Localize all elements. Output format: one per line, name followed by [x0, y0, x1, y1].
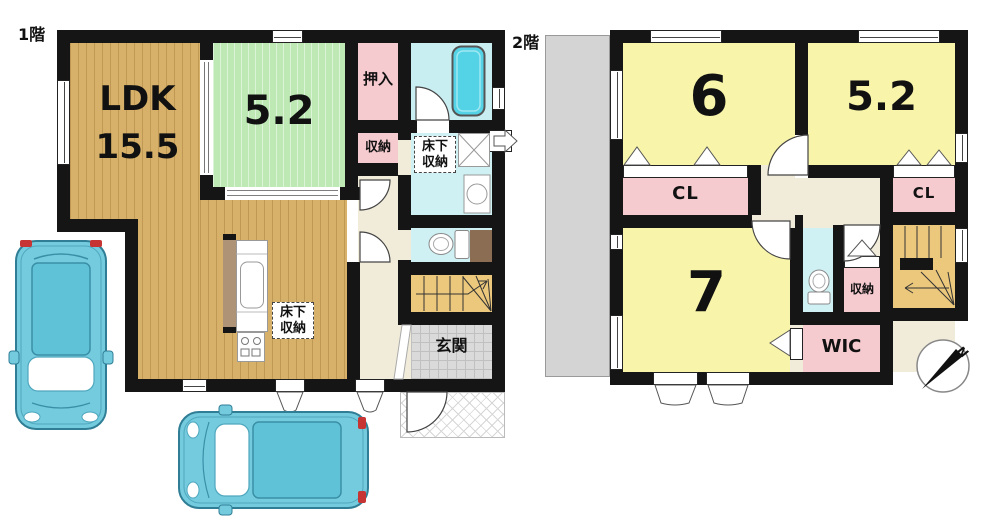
door-gap: [795, 135, 808, 178]
sliding-door-opening: [225, 187, 340, 200]
tatami-area-label: 5.2: [213, 90, 345, 132]
wall: [880, 308, 968, 321]
awning-window: [277, 392, 303, 412]
awning-window: [708, 385, 748, 405]
cl-room6-label: CL: [623, 185, 748, 204]
wall: [880, 212, 968, 225]
kitchen-partition: [223, 237, 236, 332]
window: [610, 315, 623, 370]
wall: [125, 219, 138, 392]
wall: [398, 312, 505, 325]
closet-door-sill: [790, 328, 803, 360]
window: [492, 87, 505, 110]
wic-label: WIC: [803, 338, 880, 357]
wall: [808, 165, 880, 178]
underfloor-storage-washroom-label: 床下収納: [414, 136, 456, 173]
storage-f1-label: 収納: [354, 141, 402, 155]
wall: [223, 327, 236, 333]
back-door: [489, 130, 512, 152]
awning-window: [655, 385, 696, 405]
wall: [492, 30, 505, 392]
window: [272, 30, 303, 43]
wall: [795, 30, 808, 135]
window: [955, 228, 968, 263]
closet-door-sill: [623, 165, 748, 178]
room52-area-label: 5.2: [808, 76, 955, 118]
awning-window: [357, 392, 383, 412]
entrance-porch: [400, 392, 505, 438]
compass-north-label: N: [954, 344, 971, 361]
window: [955, 133, 968, 163]
floor2-label: 2階: [512, 35, 539, 52]
window: [610, 70, 623, 140]
plan-cutout: [0, 232, 125, 440]
toilet-vanity: [470, 230, 492, 262]
ldk-area-label: 15.5: [70, 130, 205, 166]
oshiire-label: 押入: [354, 72, 402, 88]
closet-door-sill: [893, 165, 955, 178]
wall: [900, 258, 933, 270]
hallway-f1-ext: [398, 325, 411, 379]
window-sill: [653, 372, 698, 385]
car-top-view-2: [179, 405, 368, 515]
wall: [347, 262, 360, 379]
entrance-label: 玄関: [411, 338, 492, 355]
stairs-f1: [411, 275, 492, 312]
kitchen-stove: [237, 332, 265, 362]
wall: [880, 165, 893, 315]
window-sill: [706, 372, 750, 385]
wall: [223, 234, 236, 240]
wall: [790, 312, 893, 325]
wall: [345, 43, 358, 200]
wall: [411, 215, 492, 228]
storage-f2-label: 収納: [844, 283, 880, 296]
closet-door-sill: [844, 256, 880, 268]
room6-area-label: 6: [623, 68, 795, 127]
kitchen-counter: [236, 240, 268, 332]
window: [858, 30, 940, 43]
wall: [833, 225, 844, 315]
door-gap: [752, 215, 795, 228]
window: [57, 80, 70, 165]
cl-room52-label: CL: [893, 186, 955, 202]
window-sill: [275, 379, 305, 392]
window: [610, 234, 623, 250]
toilet-room-f2: [803, 228, 833, 312]
wall: [411, 120, 417, 133]
floor1-label: 1階: [18, 27, 45, 44]
ldk-name-label: LDK: [70, 82, 205, 118]
wall: [358, 120, 398, 133]
wall: [790, 215, 803, 325]
window: [182, 379, 207, 392]
window-sill: [355, 379, 385, 392]
door-gap: [398, 230, 411, 260]
underfloor-storage-ldk-label: 床下収納: [272, 302, 314, 339]
window: [650, 30, 722, 43]
hallway-f1: [358, 163, 398, 379]
bathroom: [411, 43, 492, 120]
wall: [449, 120, 492, 133]
room7-area-label: 7: [623, 264, 790, 323]
wall: [398, 262, 505, 275]
roof-strip: [545, 35, 610, 377]
floorplan-canvas: 1階 LDK 15.5 5.2 押入 収納 床下収納 床下収納 玄関: [0, 0, 1000, 520]
